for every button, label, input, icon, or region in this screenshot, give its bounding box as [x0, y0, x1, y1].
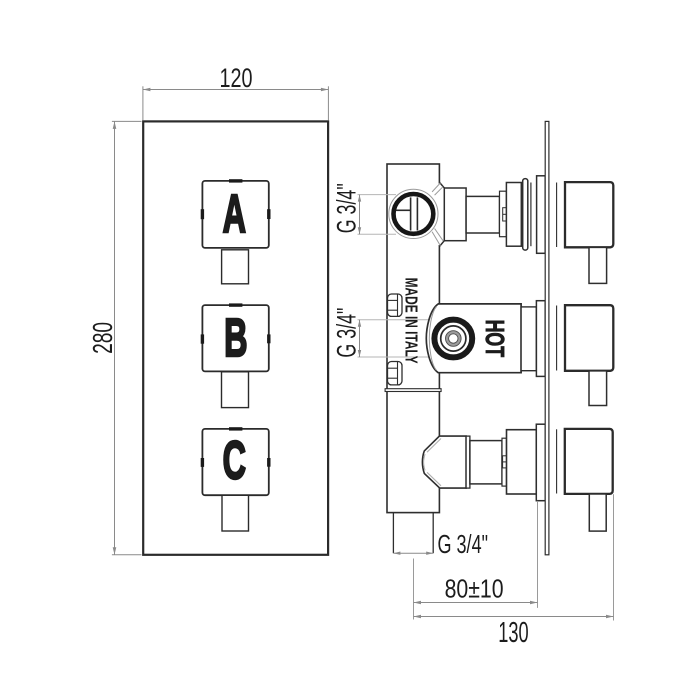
svg-text:G 3/4": G 3/4"	[331, 308, 361, 358]
svg-text:280: 280	[87, 322, 118, 354]
svg-text:G 3/4": G 3/4"	[438, 529, 489, 559]
svg-text:B: B	[224, 309, 247, 368]
svg-text:120: 120	[220, 63, 253, 93]
svg-text:MADE IN ITALY: MADE IN ITALY	[401, 278, 421, 364]
svg-text:HOT: HOT	[480, 320, 508, 358]
svg-text:C: C	[223, 431, 246, 490]
svg-text:G 3/4": G 3/4"	[331, 183, 361, 233]
svg-text:A: A	[223, 185, 246, 244]
svg-text:80±10: 80±10	[445, 574, 504, 604]
svg-text:130: 130	[498, 617, 528, 649]
